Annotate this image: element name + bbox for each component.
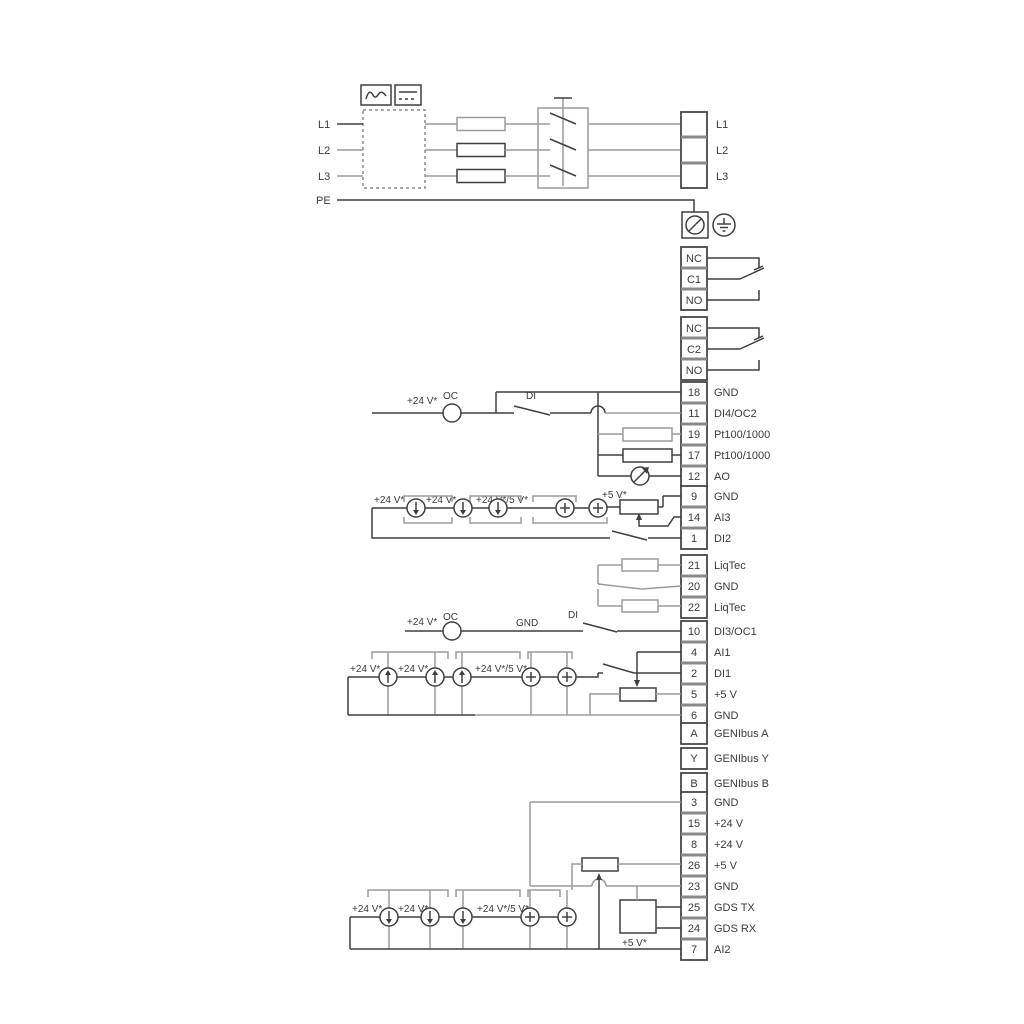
terminal-group-3-7: 3 15 8 26 23 25 24 7 GND +24 V +24 V +5 … [350,792,757,960]
dc-icon [395,85,421,105]
di2-switch-blade [612,531,647,540]
term-1: 1 [691,533,697,545]
current-source-down [454,499,472,517]
ann-di: DI [568,610,578,621]
mains-out-l3: L3 [716,171,728,183]
term-18-label: GND [714,387,739,399]
fuse-l3 [457,170,505,183]
term-24: 24 [688,923,700,935]
terminal-group-18-12: 18 11 19 17 12 GND DI4/OC2 Pt100/1000 Pt… [372,382,770,487]
pe-earth [337,200,735,238]
ann-5v: +5 V* [622,938,647,949]
term-a: A [690,728,698,740]
current-source-up [453,668,471,686]
relay2-c: C2 [687,344,701,356]
term-20-label: GND [714,581,739,593]
current-source-down [454,908,472,926]
mains-terminal-block: L1 L2 L3 [681,112,728,188]
current-source-plus [521,908,539,926]
term-17-label: Pt100/1000 [714,450,770,462]
di1-switch-blade [603,664,634,673]
liqtec-sensor-2 [622,600,658,612]
term-5-label: +5 V [714,689,738,701]
term-6: 6 [691,710,697,722]
ann-di: DI [526,391,536,402]
term-6-label: GND [714,710,739,722]
wiring-diagram: L1 L2 L3 PE [0,0,1024,1024]
term-19-label: Pt100/1000 [714,429,770,441]
ann-24v: +24 V* [374,495,404,506]
relay1-block: NC C1 NO [681,247,764,310]
term-25-label: GDS TX [714,902,755,914]
term-12: 12 [688,471,700,483]
oc-circle [443,404,461,422]
term-9-label: GND [714,491,739,503]
current-source-plus [558,668,576,686]
term-23-label: GND [714,881,739,893]
terminal-group-10-6: 10 4 2 5 6 DI3/OC1 AI1 DI1 +5 V GND +24 … [348,610,757,726]
term-20: 20 [688,581,700,593]
ann-24v: +24 V* [350,664,380,675]
term-1-label: DI2 [714,533,731,545]
term-3-label: GND [714,797,739,809]
term-21: 21 [688,560,700,572]
term-11: 11 [688,408,699,420]
current-source-plus [556,499,574,517]
term-17: 17 [688,450,700,462]
label-l2: L2 [318,145,330,157]
ai2-potentiometer [582,858,618,871]
main-switch [538,98,588,188]
term-3: 3 [691,797,697,809]
term-4-label: AI1 [714,647,731,659]
term-22: 22 [688,602,700,614]
term-9: 9 [691,491,697,503]
term-2: 2 [691,668,697,680]
potentiometer [620,500,658,514]
fuse-l2 [457,144,505,157]
term-4: 4 [691,647,697,659]
ann-24v: +24 V* [407,617,437,628]
pt100-sensor-1 [623,428,672,441]
gds-sensor-box [620,900,656,933]
schematic-canvas: L1 L2 L3 PE [0,0,1024,1024]
earth-icon [713,214,735,236]
relay1-no: NO [686,295,703,307]
term-25: 25 [688,902,700,914]
ann-oc: OC [443,391,458,402]
ann-24v-5v: +24 V*/5 V* [475,664,527,675]
current-source-plus [589,499,607,517]
term-y: Y [690,753,698,765]
ai1-potentiometer [620,688,656,701]
current-source-down [489,499,507,517]
mains-out-l2: L2 [716,145,728,157]
term-14: 14 [688,512,700,524]
current-source-up [379,668,397,686]
term-22-label: LiqTec [714,602,746,614]
terminal-group-liqtec: 21 20 22 LiqTec GND LiqTec [598,555,746,618]
label-l3: L3 [318,171,330,183]
term-12-label: AO [714,471,730,483]
term-21-label: LiqTec [714,560,746,572]
pt100-sensor-2 [623,449,672,462]
label-pe: PE [316,195,331,207]
term-15-label: +24 V [714,818,744,830]
term-23: 23 [688,881,700,893]
relay1-c: C1 [687,274,701,286]
label-l1: L1 [318,119,330,131]
term-24-label: GDS RX [714,923,757,935]
relay2-no: NO [686,365,703,377]
ann-24v: +24 V* [398,664,428,675]
oc-circle [443,622,461,640]
term-10: 10 [688,626,700,638]
ac-icon [361,85,391,105]
relay1-contact [740,268,764,279]
term-y-label: GENIbus Y [714,753,769,765]
term-8-label: +24 V [714,839,744,851]
current-source-plus [558,908,576,926]
relay2-nc: NC [686,323,702,335]
ann-24v: +24 V* [407,396,437,407]
di-switch-blade [514,406,550,415]
relay2-block: NC C2 NO [681,317,764,380]
term-26: 26 [688,860,700,872]
relay1-nc: NC [686,253,702,265]
current-source-down [380,908,398,926]
ann-24v: +24 V* [352,904,382,915]
term-8: 8 [691,839,697,851]
term-7: 7 [691,944,697,956]
term-19: 19 [688,429,700,441]
term-5: 5 [691,689,697,701]
di3-switch-blade [583,623,617,632]
relay2-contact [740,338,764,349]
term-14-label: AI3 [714,512,731,524]
term-7-label: AI2 [714,944,731,956]
term-18: 18 [688,387,700,399]
terminal-group-9-14-1: 9 14 1 GND AI3 DI2 +24 V* +24 V* +24 V*/… [372,486,739,549]
term-26-label: +5 V [714,860,738,872]
current-source-plus [522,668,540,686]
liqtec-sensor-1 [622,559,658,571]
term-b: B [690,778,697,790]
term-b-label: GENIbus B [714,778,769,790]
term-10-label: DI3/OC1 [714,626,757,638]
terminal-group-genibus: A Y B GENIbus A GENIbus Y GENIbus B [681,723,769,794]
emc-filter-box [363,110,425,188]
current-source-down [421,908,439,926]
mains-out-l1: L1 [716,119,728,131]
current-source-down [407,499,425,517]
term-11-label: DI4/OC2 [714,408,757,420]
term-2-label: DI1 [714,668,731,680]
term-15: 15 [688,818,700,830]
power-section: L1 L2 L3 PE [316,85,735,238]
term-a-label: GENIbus A [714,728,769,740]
ann-oc: OC [443,612,458,623]
fuse-l1 [457,118,505,131]
ann-gnd: GND [516,618,538,629]
current-source-up [426,668,444,686]
